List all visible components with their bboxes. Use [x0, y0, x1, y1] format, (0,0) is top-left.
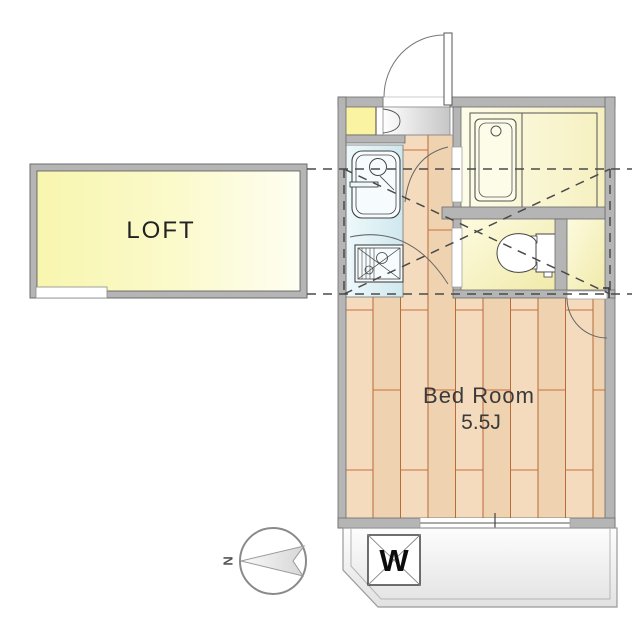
- north-compass-icon: [240, 528, 306, 594]
- shoe-cabinet: [345, 106, 376, 135]
- floor-plan: LOFT Bed Room 5.5J W N: [0, 0, 639, 640]
- bedroom-label: Bed Room: [423, 383, 535, 409]
- bathroom-door-opening: [452, 147, 462, 202]
- entry-genkan: [383, 97, 450, 135]
- bedroom-size-label: 5.5J: [461, 411, 501, 435]
- loft-opening: [36, 287, 107, 298]
- toilet-room: [461, 219, 557, 290]
- closet: [567, 219, 605, 290]
- entry-door-icon: [444, 33, 452, 105]
- loft-label: LOFT: [126, 217, 195, 245]
- kitchen-counter: [346, 145, 403, 297]
- kitchen-sink-icon: [350, 151, 400, 218]
- closet-door-opening: [567, 291, 607, 299]
- bathtub-icon: [475, 119, 516, 201]
- bathroom: [461, 107, 605, 209]
- floor-plan-drawing: [0, 0, 639, 640]
- north-label: N: [221, 556, 236, 565]
- toilet-door-opening: [452, 228, 462, 287]
- gas-stove-icon: [355, 245, 403, 282]
- washer-label: W: [379, 543, 408, 579]
